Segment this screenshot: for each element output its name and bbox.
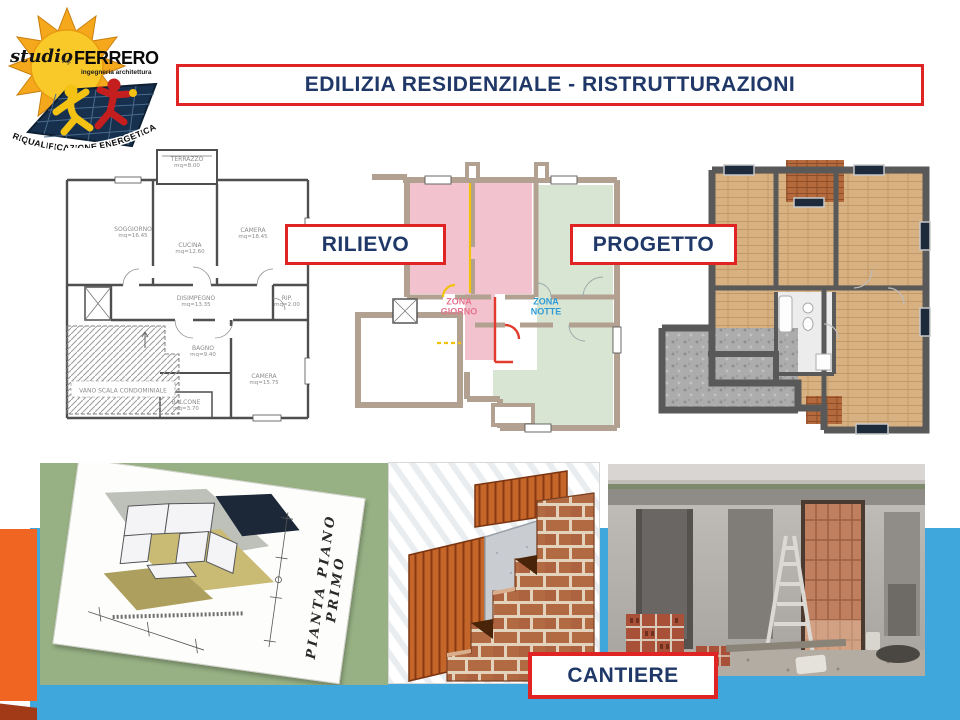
room-label-disimpegno: DISIMPEGNOmq=13.35 [177, 295, 215, 309]
rilievo-tag: RILIEVO [285, 224, 446, 265]
construction-photo [608, 464, 925, 676]
house-model-drawing [54, 463, 317, 674]
construction-photo-drawing [608, 464, 925, 676]
logo-ing-text: ing. [62, 59, 72, 65]
studio-ferrero-logo: studio ing. FERRERO ingegneria architett… [4, 6, 162, 158]
cantiere-label: CANTIERE [567, 664, 678, 688]
cantiere-tag: CANTIERE [528, 652, 718, 699]
room-label-balcone: BALCONEmq=3.70 [172, 399, 201, 413]
logo-name-text: FERRERO [74, 48, 159, 68]
left-orange-bar [0, 529, 37, 701]
floor-plan-3d-render [658, 158, 935, 442]
progetto-label: PROGETTO [593, 233, 714, 257]
brick-wall-drawing [389, 463, 599, 683]
room-label-camera-2: CAMERAmq=15.75 [249, 373, 278, 387]
floor-plan-rilievo: TERRAZZOmq=8.00 SOGGIORNOmq=16.45 CUCINA… [65, 148, 310, 430]
room-label-terrazzo: TERRAZZOmq=8.00 [171, 156, 204, 170]
plan-sheet: PIANTA PIANO PRIMO [52, 463, 365, 684]
progetto-tag: PROGETTO [570, 224, 737, 265]
zone-label-giorno: ZONA GIORNO [436, 297, 482, 318]
brick-wall-panel [388, 462, 600, 684]
room-label-camera-1: CAMERAmq=18.45 [238, 227, 267, 241]
floor-plan-progetto: ZONA GIORNO ZONA NOTTE [355, 147, 633, 439]
title-banner: EDILIZIA RESIDENZIALE - RISTRUTTURAZIONI [176, 64, 924, 106]
zone-label-notte: ZONA NOTTE [523, 297, 569, 318]
floor-plan-3d-drawing [658, 158, 935, 442]
room-label-cucina: CUCINAmq=12.60 [175, 242, 204, 256]
room-label-bagno: BAGNOmq=9.40 [190, 345, 216, 359]
rilievo-label: RILIEVO [322, 233, 410, 257]
page-title: EDILIZIA RESIDENZIALE - RISTRUTTURAZIONI [305, 73, 796, 97]
floor-plan-progetto-drawing [355, 147, 633, 439]
logo-subtitle-text: ingegneria architettura [81, 69, 152, 76]
room-label-rip: RIP.mq=2.00 [274, 295, 300, 309]
slide: studio ing. FERRERO ingegneria architett… [0, 0, 960, 720]
room-label-soggiorno: SOGGIORNOmq=16.45 [114, 226, 152, 240]
sketch-panel: PIANTA PIANO PRIMO [40, 463, 388, 685]
room-label-vano-scala: VANO SCALA CONDOMINIALE [79, 387, 167, 394]
